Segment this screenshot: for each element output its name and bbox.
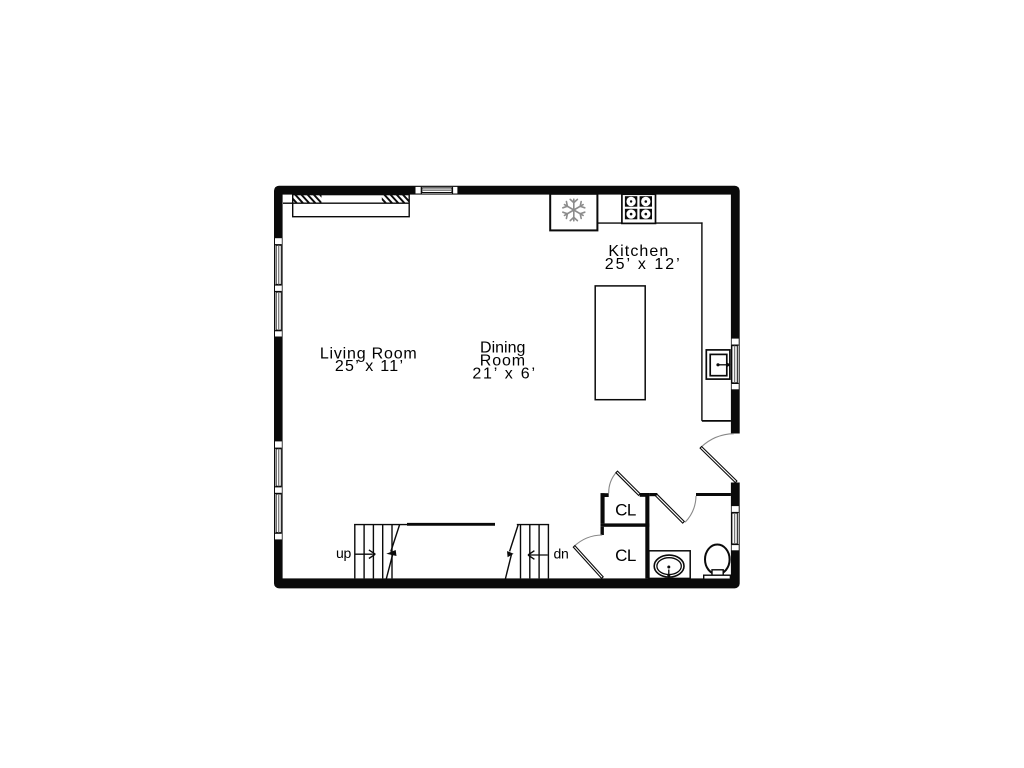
svg-text:25’ x 11’: 25’ x 11’ <box>335 358 405 375</box>
svg-text:CL: CL <box>615 546 636 565</box>
svg-text:21’ x 6’: 21’ x 6’ <box>472 365 537 382</box>
svg-text:dn: dn <box>554 545 569 561</box>
svg-text:25’ x 12’: 25’ x 12’ <box>605 256 682 273</box>
svg-text:up: up <box>336 545 351 561</box>
svg-text:CL: CL <box>615 501 636 520</box>
